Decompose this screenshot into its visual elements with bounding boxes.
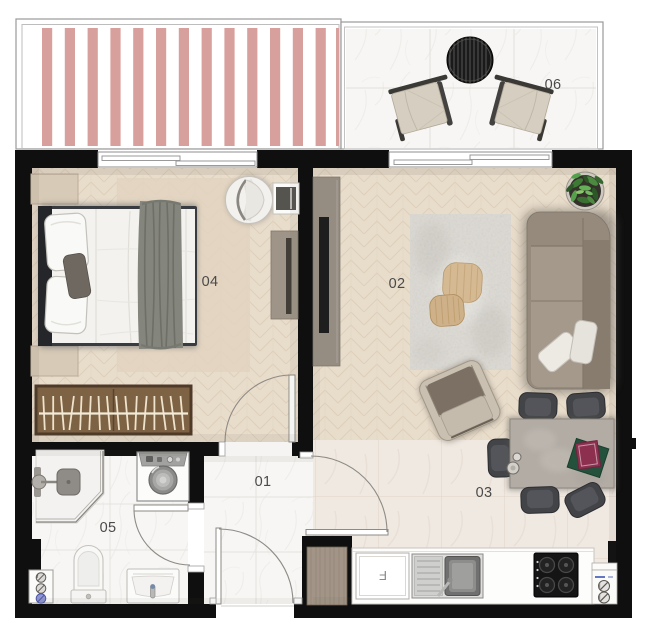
svg-text:05: 05 xyxy=(100,520,117,536)
svg-text:04: 04 xyxy=(202,274,219,290)
svg-text:06: 06 xyxy=(545,77,562,93)
svg-text:03: 03 xyxy=(476,485,493,501)
svg-text:02: 02 xyxy=(389,276,406,292)
svg-text:01: 01 xyxy=(255,474,272,490)
svg-text:F: F xyxy=(379,568,387,583)
